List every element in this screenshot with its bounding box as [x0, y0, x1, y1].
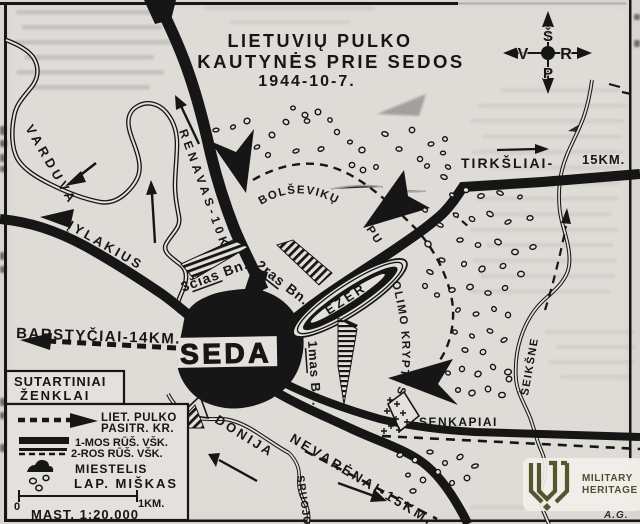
svg-text:P: P [543, 65, 553, 82]
svg-text:ŽENKLAI: ŽENKLAI [20, 388, 90, 403]
svg-text:MILITARY: MILITARY [582, 473, 633, 484]
svg-text:R: R [560, 46, 572, 63]
svg-text:SUTARTINIAI: SUTARTINIAI [14, 374, 106, 389]
svg-text:KAUTYNĖS PRIE SEDOS: KAUTYNĖS PRIE SEDOS [197, 51, 465, 72]
svg-text:SENKAPIAI: SENKAPIAI [419, 415, 498, 429]
svg-text:1944-10-7.: 1944-10-7. [258, 73, 355, 90]
svg-text:MIESTELIS: MIESTELIS [75, 462, 147, 476]
svg-text:LAP. MIŠKAS: LAP. MIŠKAS [74, 476, 178, 491]
svg-text:LIETUVIŲ PULKO: LIETUVIŲ PULKO [227, 31, 412, 51]
svg-text:0: 0 [14, 501, 20, 513]
svg-text:2-ROS RŪŠ. VŠK.: 2-ROS RŪŠ. VŠK. [71, 447, 163, 460]
svg-text:TIRKŠLIAI-: TIRKŠLIAI- [461, 154, 554, 171]
svg-text:V: V [518, 46, 529, 63]
svg-text:Š: Š [543, 27, 553, 45]
svg-text:HERITAGE: HERITAGE [582, 485, 638, 496]
svg-text:SEDA: SEDA [180, 337, 272, 370]
svg-text:15KM.: 15KM. [582, 152, 625, 167]
svg-text:PASITR. KR.: PASITR. KR. [101, 423, 174, 435]
svg-text:MAST. 1:20.000: MAST. 1:20.000 [31, 507, 139, 522]
svg-text:A.G.: A.G. [603, 510, 629, 521]
svg-text:1KM.: 1KM. [138, 498, 164, 510]
